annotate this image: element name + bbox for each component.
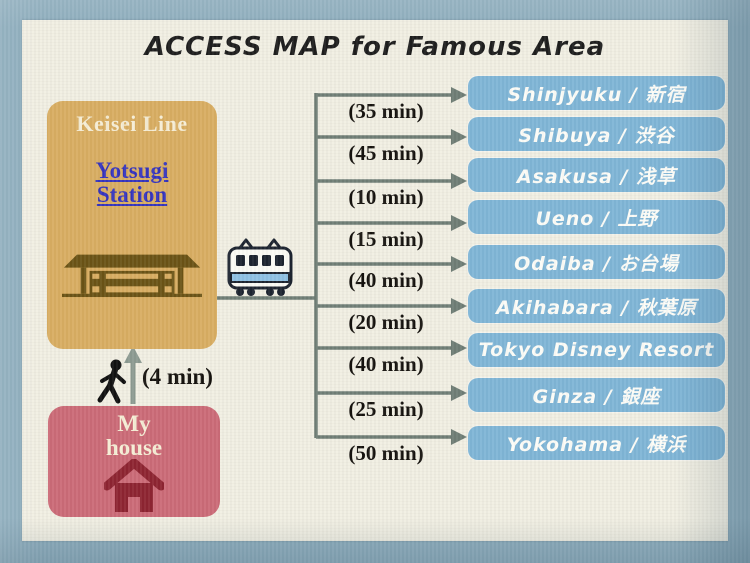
station-name-line1: Yotsugi [47, 159, 217, 183]
destination-label: Shibuya / 渋谷 [518, 121, 674, 148]
destination-box: Shinjyuku / 新宿 [468, 76, 725, 110]
destination-box: Yokohama / 横浜 [468, 426, 725, 460]
destination-label: Shinjyuku / 新宿 [507, 80, 685, 107]
walk-duration-label: (4 min) [142, 364, 213, 390]
station-name-line2: Station [47, 183, 217, 207]
travel-time-label: (45 min) [322, 141, 450, 166]
walking-person-icon [97, 359, 131, 405]
destination-label: Odaiba / お台場 [514, 249, 679, 276]
destination-box: Shibuya / 渋谷 [468, 117, 725, 151]
station-name-link[interactable]: Yotsugi Station [47, 159, 217, 207]
house-label-line1: My [48, 412, 220, 436]
destination-label: Tokyo Disney Resort [479, 339, 715, 361]
line-name-label: Keisei Line [47, 111, 217, 137]
destination-box: Ginza / 銀座 [468, 378, 725, 412]
house-label: My house [48, 412, 220, 460]
destination-label: Akihabara / 秋葉原 [496, 293, 697, 320]
travel-time-label: (25 min) [322, 397, 450, 422]
travel-time-label: (50 min) [322, 441, 450, 466]
travel-time-label: (35 min) [322, 99, 450, 124]
station-building-icon [62, 253, 202, 300]
house-icon [104, 459, 164, 512]
station-box: Keisei Line Yotsugi Station [47, 101, 217, 349]
travel-time-label: (20 min) [322, 310, 450, 335]
travel-time-label: (40 min) [322, 268, 450, 293]
destination-label: Yokohama / 横浜 [507, 430, 687, 457]
destination-label: Ginza / 銀座 [533, 382, 661, 409]
destination-box: Asakusa / 浅草 [468, 158, 725, 192]
travel-time-label: (10 min) [322, 185, 450, 210]
page-title: ACCESS MAP for Famous Area [22, 32, 728, 62]
access-map-slide: ACCESS MAP for Famous Area Keisei Line Y… [0, 0, 750, 563]
destination-box: Odaiba / お台場 [468, 245, 725, 279]
house-label-line2: house [48, 436, 220, 460]
destination-box: Tokyo Disney Resort [468, 333, 725, 367]
destination-box: Ueno / 上野 [468, 200, 725, 234]
destination-label: Ueno / 上野 [535, 204, 657, 231]
destination-box: Akihabara / 秋葉原 [468, 289, 725, 323]
destination-label: Asakusa / 浅草 [517, 162, 676, 189]
travel-time-label: (40 min) [322, 352, 450, 377]
train-icon [227, 236, 295, 298]
house-box: My house [48, 406, 220, 517]
travel-time-label: (15 min) [322, 227, 450, 252]
